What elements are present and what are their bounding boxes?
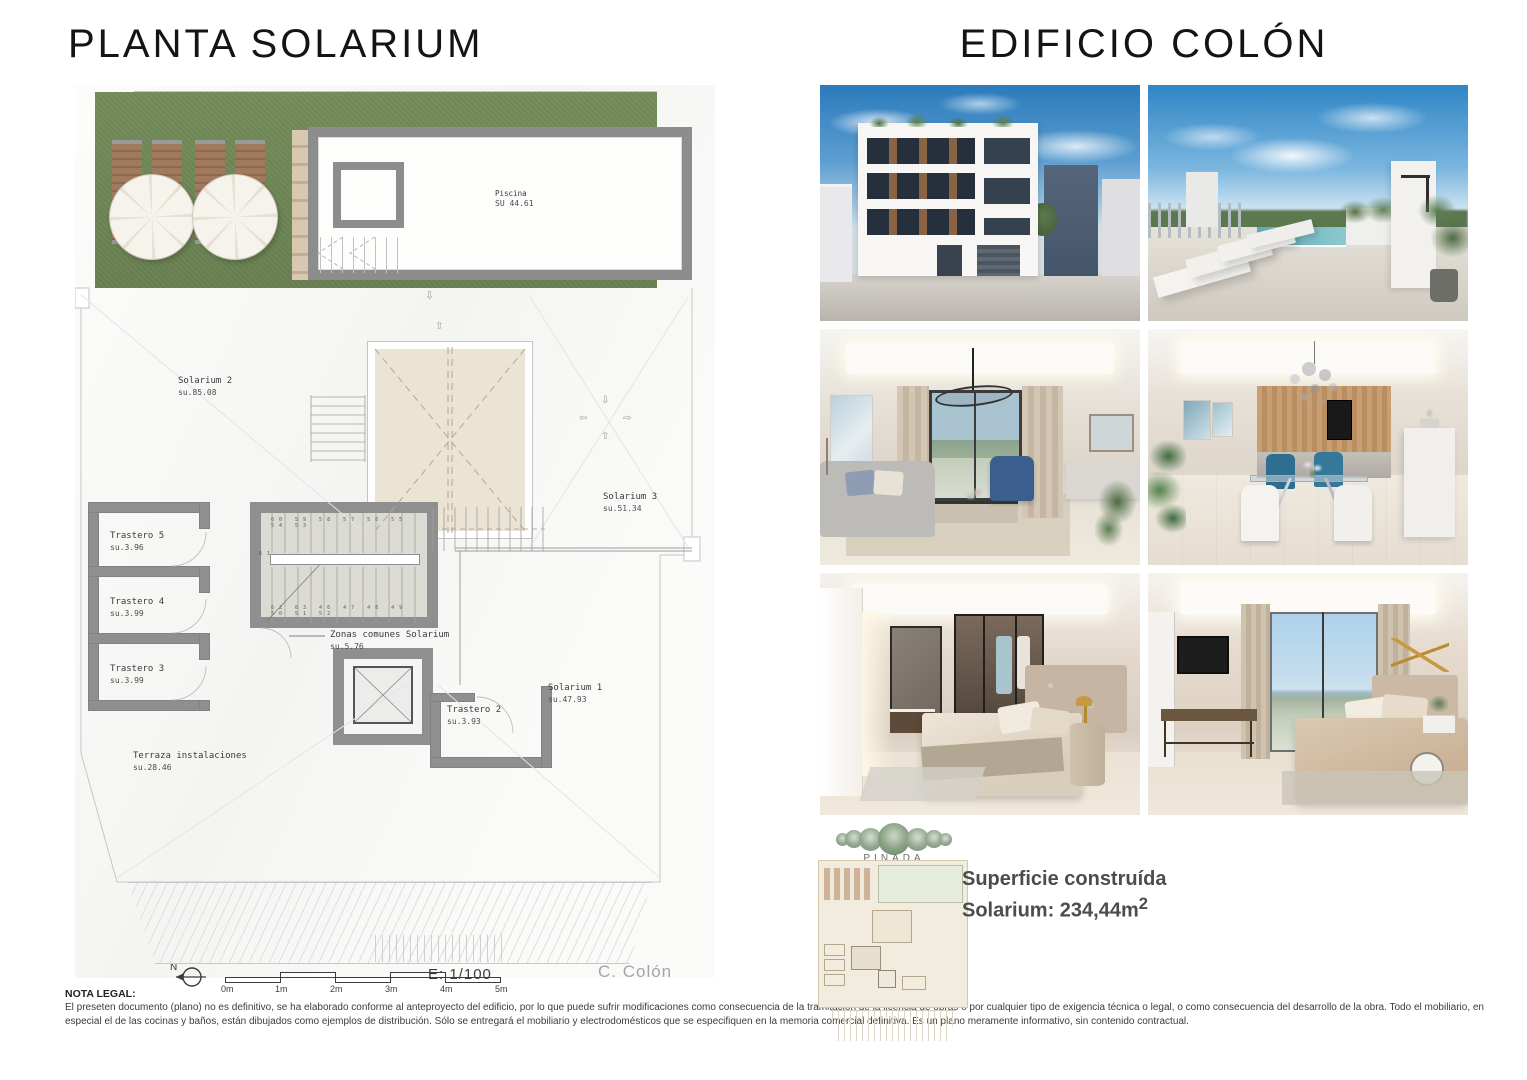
brochure-page: PLANTA SOLARIUM EDIFICIO COLÓN 60 59 58 … xyxy=(0,0,1527,1080)
stair-step-numbers-upper: 60 59 58 57 56 55 54 53 xyxy=(271,517,421,529)
room-label-solarium2: Solarium 2 su.85.08 xyxy=(178,376,232,398)
lamp-stem xyxy=(1084,706,1087,723)
plant-pot xyxy=(1430,269,1459,302)
photo-building-exterior xyxy=(820,85,1140,321)
console-table xyxy=(1161,709,1257,721)
orchid-centerpiece xyxy=(1295,456,1327,477)
mini-pool xyxy=(878,865,963,903)
sup-2: 2 xyxy=(1139,894,1148,913)
mini-skylight xyxy=(872,910,912,943)
tall-cabinet xyxy=(1404,428,1455,537)
legal-body: El preseten documento (plano) no es defi… xyxy=(65,1001,1515,1029)
oven xyxy=(1327,400,1351,440)
mini-room xyxy=(902,976,926,990)
plan-linework xyxy=(75,85,715,978)
ceiling-cove xyxy=(846,343,1115,374)
plant xyxy=(1095,466,1140,556)
mini-hatch xyxy=(826,1010,960,1041)
curtain-left xyxy=(1241,604,1270,759)
window-strip xyxy=(867,209,975,235)
photo-bedroom-dressing xyxy=(820,573,1140,815)
sunlight-glow xyxy=(862,612,894,777)
slope-arrow-icon: ⇩ xyxy=(601,395,609,406)
rug xyxy=(859,767,985,801)
console-shelf xyxy=(1164,742,1254,744)
room-label-terraza: Terraza instalaciones su.28.46 xyxy=(133,751,247,773)
pillow xyxy=(1030,706,1071,735)
pendant-lamp xyxy=(972,348,974,390)
gold-table-lamp xyxy=(1076,696,1092,706)
room-label-trastero2: Trastero 2 su.3.93 xyxy=(447,705,501,727)
photo-bedroom-views xyxy=(1148,573,1468,815)
rug xyxy=(1282,771,1468,805)
built-area-summary: Superficie construída Solarium: 234,44m2 xyxy=(962,866,1167,925)
mini-room xyxy=(824,959,845,971)
room-label-trastero5: Trastero 5 su.3.96 xyxy=(110,531,164,553)
console-leg xyxy=(1250,721,1252,757)
room-label-solarium1: Solarium 1 su.47.93 xyxy=(548,683,602,705)
garage-door xyxy=(977,245,1020,276)
summary-line2: Solarium: 234,44m2 xyxy=(962,893,1167,925)
room-label-zonas-comunes: Zonas comunes Solarium su.5.76 xyxy=(330,630,449,652)
summary-line1: Superficie construída xyxy=(962,866,1167,893)
tree-right xyxy=(1417,184,1468,274)
neighbor-building-left xyxy=(820,184,852,281)
chandelier-stem xyxy=(1314,341,1315,365)
neighbor-building-right xyxy=(1102,179,1140,276)
flowers xyxy=(961,485,993,504)
roof-plants xyxy=(862,109,1035,128)
wood-wall xyxy=(1257,386,1391,457)
room-label-solarium3: Solarium 3 su.51.34 xyxy=(603,492,657,514)
mini-room xyxy=(824,974,845,986)
main-building xyxy=(858,123,1037,276)
plant-vase xyxy=(1423,694,1455,733)
photo-living-room xyxy=(820,329,1140,565)
console-leg xyxy=(1164,721,1166,757)
window-strip xyxy=(867,173,975,199)
chair-white xyxy=(1334,485,1372,542)
stair-handrail xyxy=(270,554,420,565)
mini-room xyxy=(824,944,845,956)
stair-step-numbers-lower: 62 63 46 47 48 49 50 51 52 xyxy=(271,605,431,617)
coffee-table xyxy=(935,501,1018,522)
slope-arrow-icon: ⇦ xyxy=(579,413,587,424)
sofa-cushion-blue xyxy=(844,469,875,495)
legal-title: NOTA LEGAL: xyxy=(65,988,1515,1000)
slope-arrow-icon: ⇧ xyxy=(435,321,443,332)
mini-stairwell xyxy=(851,946,881,970)
page-title-left: PLANTA SOLARIUM xyxy=(68,22,483,67)
tv-screen xyxy=(1177,636,1229,674)
gold-sconce-icon xyxy=(1391,638,1449,672)
wall-art xyxy=(830,395,874,468)
photo-rooftop-solarium xyxy=(1148,85,1468,321)
chair-white xyxy=(1241,485,1279,542)
room-label-trastero4: Trastero 4 su.3.99 xyxy=(110,597,164,619)
door-white xyxy=(820,588,863,796)
pinada-tree-icons xyxy=(818,826,970,852)
balcony-column xyxy=(984,138,1031,235)
armchair-blue xyxy=(990,456,1035,501)
monstera-plant xyxy=(1148,428,1186,541)
shower-fixture-icon xyxy=(1401,175,1430,178)
window-strip xyxy=(867,138,975,164)
bedside-pedestal xyxy=(1070,723,1105,786)
tree-icon xyxy=(939,833,952,846)
vase-flower xyxy=(1420,407,1439,428)
slope-arrow-icon: ⇩ xyxy=(425,289,434,302)
ceiling-cove xyxy=(852,585,1108,614)
photo-dining-kitchen xyxy=(1148,329,1468,565)
floor-lamp xyxy=(826,438,828,476)
mirror xyxy=(1089,414,1134,452)
hanging-clothes xyxy=(996,636,1012,694)
room-label-piscina: Piscina SU 44.61 xyxy=(495,189,534,209)
wall-art xyxy=(1183,400,1211,440)
mini-floor-plan xyxy=(818,860,968,1042)
stair-step-number-mid: 61 xyxy=(259,551,275,557)
slope-arrow-icon: ⇨ xyxy=(623,413,631,424)
mini-loungers xyxy=(824,868,870,900)
floor-plan: 60 59 58 57 56 55 54 53 61 62 63 46 47 4… xyxy=(75,85,715,978)
mini-elevator xyxy=(878,970,896,988)
entrance xyxy=(937,245,962,276)
chimney xyxy=(1186,172,1218,226)
legal-note: NOTA LEGAL: El preseten documento (plano… xyxy=(65,988,1515,1029)
page-title-right: EDIFICIO COLÓN xyxy=(820,22,1468,67)
pinada-logo: PINADA xyxy=(818,826,970,864)
slope-arrow-icon: ⇧ xyxy=(601,431,609,442)
sofa-cushion xyxy=(874,470,904,496)
wall-art xyxy=(1212,402,1233,437)
street xyxy=(820,274,1140,321)
room-label-trastero3: Trastero 3 su.3.99 xyxy=(110,664,164,686)
